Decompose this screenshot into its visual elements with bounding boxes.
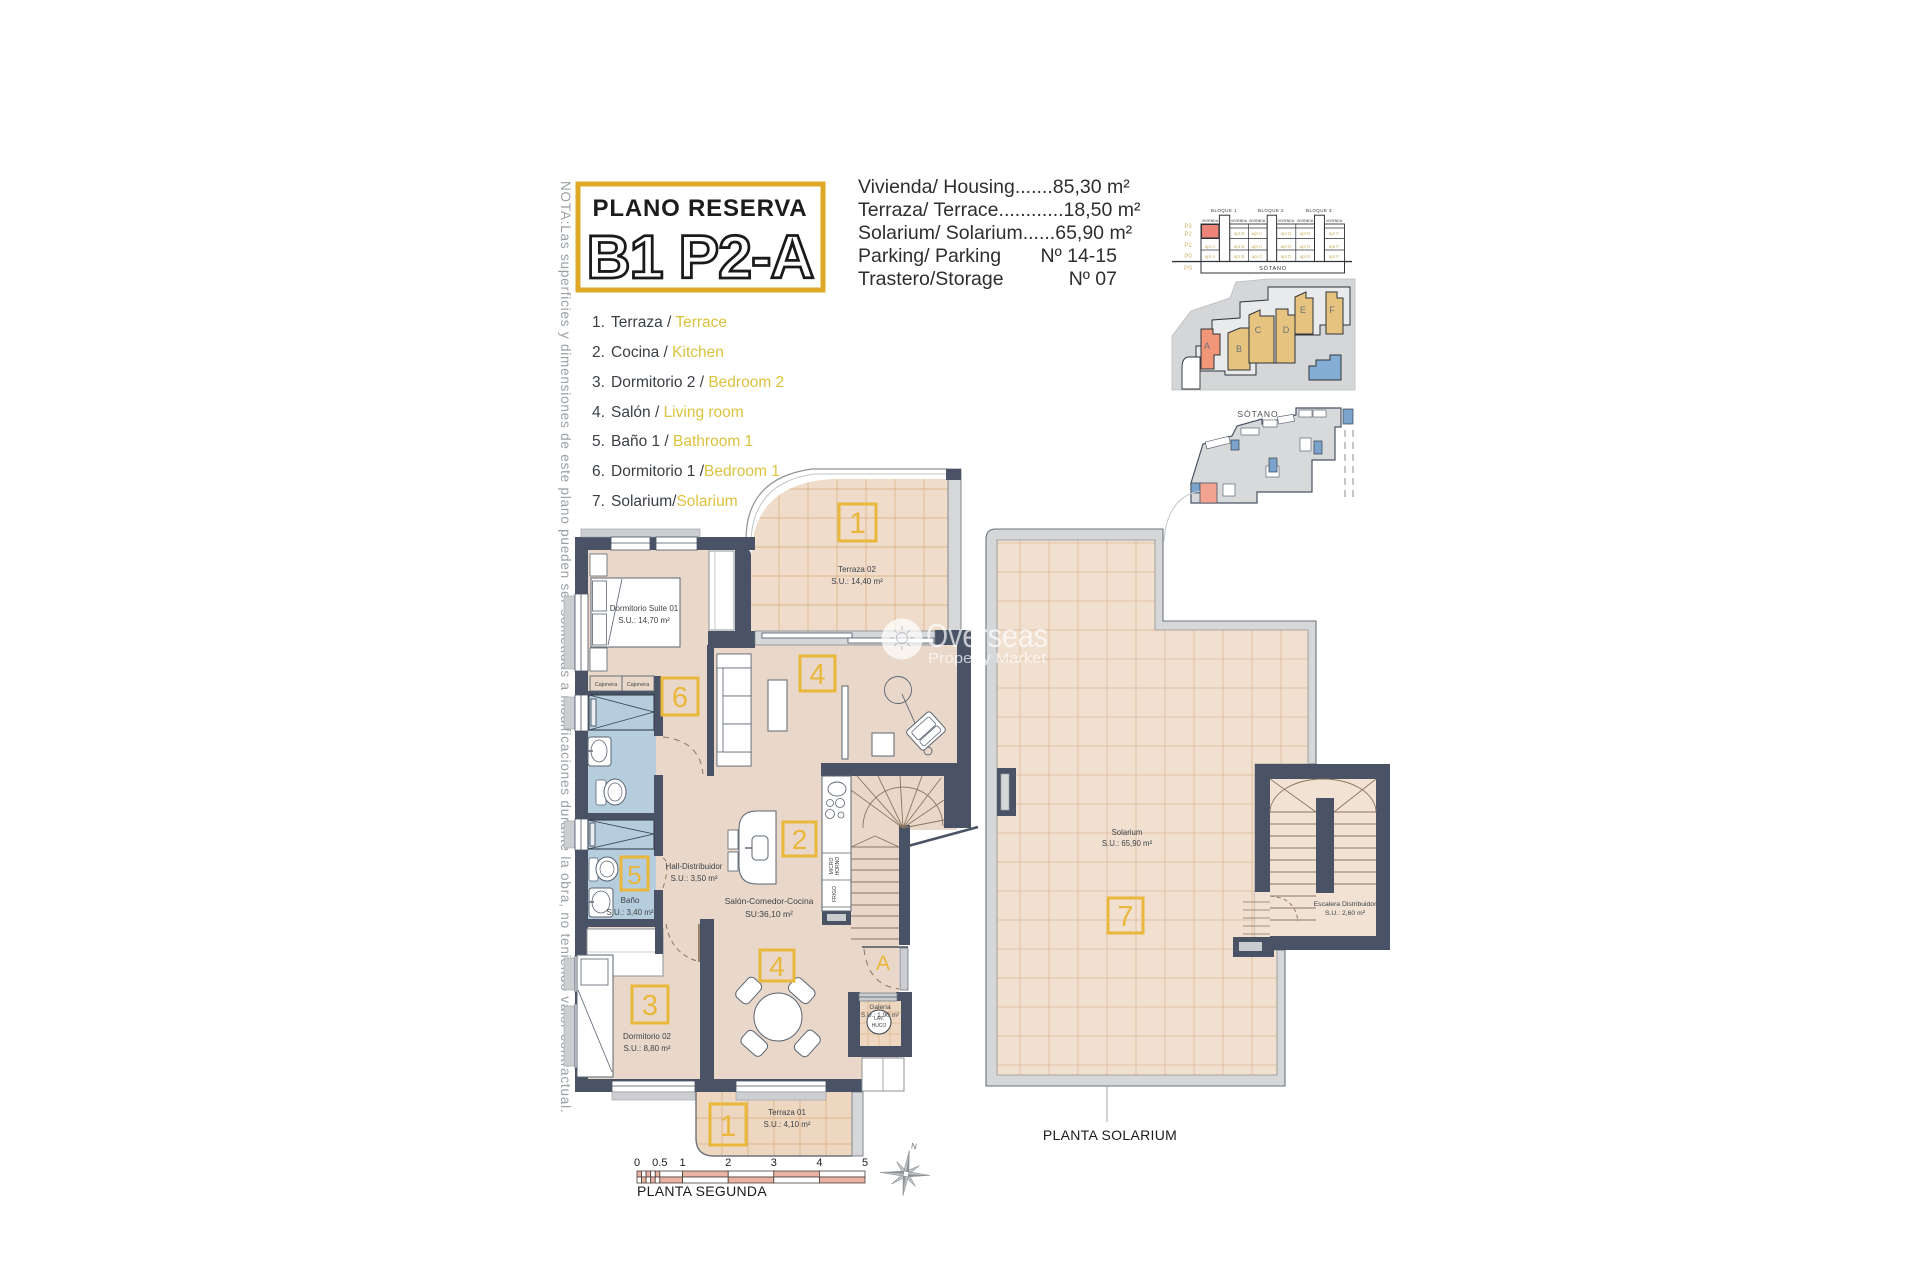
svg-text:apt C: apt C — [1252, 231, 1264, 236]
svg-text:5.: 5. — [592, 433, 605, 450]
svg-text:1: 1 — [680, 1157, 686, 1169]
svg-text:Terraza 02: Terraza 02 — [838, 565, 876, 574]
svg-text:S.U.: 65,90 m²: S.U.: 65,90 m² — [1102, 839, 1153, 848]
svg-text:A: A — [1204, 341, 1210, 351]
svg-text:4: 4 — [809, 659, 825, 691]
svg-text:apt A: apt A — [1205, 254, 1216, 259]
svg-text:S.U.: 14,40 m²: S.U.: 14,40 m² — [831, 577, 883, 586]
svg-text:Terraza / Terrace: Terraza / Terrace — [611, 314, 727, 331]
svg-text:apt D: apt D — [1281, 254, 1293, 259]
svg-text:B: B — [1236, 344, 1242, 354]
svg-text:2: 2 — [792, 824, 808, 855]
svg-text:apt F: apt F — [1329, 254, 1340, 259]
svg-text:S.U.: 2,60 m²: S.U.: 2,60 m² — [1325, 910, 1366, 917]
svg-text:Vivienda/ Housing.......85,30: Vivienda/ Housing.......85,30 m² — [858, 176, 1130, 198]
svg-text:Terraza 01: Terraza 01 — [768, 1108, 806, 1117]
svg-text:Solarium/Solarium: Solarium/Solarium — [611, 493, 738, 510]
svg-text:apt C: apt C — [1252, 244, 1264, 249]
svg-text:Trastero/Storage: Trastero/Storage — [858, 268, 1004, 290]
svg-text:S.U.: 1,90 m²: S.U.: 1,90 m² — [861, 1012, 900, 1019]
svg-text:apt E: apt E — [1300, 231, 1311, 236]
svg-text:Dormitorio 02: Dormitorio 02 — [623, 1032, 672, 1041]
svg-text:SU:36,10 m²: SU:36,10 m² — [745, 909, 793, 919]
svg-text:F: F — [1329, 305, 1335, 315]
svg-text:P2: P2 — [1184, 232, 1192, 238]
svg-text:HUCO: HUCO — [872, 1023, 887, 1029]
svg-text:Cajonera: Cajonera — [595, 682, 618, 688]
svg-text:2: 2 — [725, 1157, 731, 1169]
svg-text:apt B: apt B — [1234, 244, 1245, 249]
svg-text:BLOQUE 3: BLOQUE 3 — [1306, 208, 1332, 213]
svg-text:SÓTANO: SÓTANO — [1259, 265, 1287, 272]
svg-text:Cocina / Kitchen: Cocina / Kitchen — [611, 344, 724, 361]
svg-text:Property Market: Property Market — [928, 650, 1047, 667]
svg-text:Nº 14-15: Nº 14-15 — [1041, 245, 1118, 267]
svg-text:7.: 7. — [592, 493, 605, 510]
svg-text:7: 7 — [1117, 901, 1133, 933]
svg-text:Dormitorio Suite 01: Dormitorio Suite 01 — [610, 604, 679, 613]
svg-text:Salón-Comedor-Cocina: Salón-Comedor-Cocina — [725, 896, 814, 906]
svg-text:P3: P3 — [1184, 224, 1192, 230]
svg-text:VIVIENDA: VIVIENDA — [1278, 219, 1295, 223]
svg-text:4: 4 — [769, 951, 785, 982]
svg-text:BLOQUE 1: BLOQUE 1 — [1211, 208, 1237, 213]
svg-text:Dormitorio 1 /Bedroom 1: Dormitorio 1 /Bedroom 1 — [611, 463, 780, 480]
svg-text:PS: PS — [1184, 266, 1192, 272]
svg-text:PLANO RESERVA: PLANO RESERVA — [593, 195, 808, 222]
svg-text:Dormitorio 2 / Bedroom 2: Dormitorio 2 / Bedroom 2 — [611, 374, 784, 391]
svg-text:S.U.: 8,80 m²: S.U.: 8,80 m² — [623, 1044, 670, 1053]
svg-text:5: 5 — [627, 860, 641, 890]
svg-text:PLANTA SEGUNDA: PLANTA SEGUNDA — [637, 1183, 767, 1199]
svg-text:HORNO: HORNO — [835, 857, 841, 876]
svg-text:apt B: apt B — [1234, 231, 1245, 236]
svg-text:VIVIENDA: VIVIENDA — [1231, 219, 1248, 223]
svg-text:1: 1 — [849, 507, 866, 540]
svg-text:VIVIENDA: VIVIENDA — [1202, 219, 1219, 223]
svg-text:SÓTANO: SÓTANO — [1237, 409, 1278, 419]
svg-text:apt F: apt F — [1329, 231, 1340, 236]
svg-text:Hall-Distribuidor: Hall-Distribuidor — [666, 862, 723, 871]
svg-text:S.U.: 3,40 m²: S.U.: 3,40 m² — [606, 908, 653, 917]
svg-text:0.5: 0.5 — [652, 1157, 667, 1169]
svg-text:P1: P1 — [1184, 243, 1192, 249]
svg-text:Escalera Distribuidor: Escalera Distribuidor — [1314, 901, 1377, 908]
svg-text:apt B: apt B — [1234, 254, 1245, 259]
svg-text:S.U.: 4,10 m²: S.U.: 4,10 m² — [763, 1120, 810, 1129]
svg-text:VIVIENDA: VIVIENDA — [1249, 219, 1266, 223]
svg-text:C: C — [1255, 325, 1262, 335]
svg-text:MICRO: MICRO — [829, 858, 835, 875]
svg-text:Salón / Living room: Salón / Living room — [611, 404, 744, 421]
svg-text:FRIGO: FRIGO — [832, 886, 838, 902]
svg-text:apt E: apt E — [1300, 244, 1311, 249]
svg-text:Baño: Baño — [621, 896, 640, 905]
svg-text:apt C: apt C — [1252, 254, 1264, 259]
svg-text:3: 3 — [771, 1157, 777, 1169]
svg-text:PLANTA SOLARIUM: PLANTA SOLARIUM — [1043, 1127, 1177, 1143]
svg-text:BLOQUE 2: BLOQUE 2 — [1258, 208, 1284, 213]
svg-text:apt A: apt A — [1205, 244, 1216, 249]
svg-text:apt F: apt F — [1329, 244, 1340, 249]
svg-text:4: 4 — [816, 1157, 822, 1169]
svg-text:apt D: apt D — [1281, 231, 1293, 236]
svg-text:4.: 4. — [592, 404, 605, 421]
svg-text:S.U.: 14,70 m²: S.U.: 14,70 m² — [618, 616, 670, 625]
svg-text:Solarium/ Solarium......65,90: Solarium/ Solarium......65,90 m² — [858, 222, 1133, 244]
svg-text:3: 3 — [642, 990, 658, 1022]
svg-text:VIVIENDA: VIVIENDA — [1326, 219, 1343, 223]
svg-text:Nº 07: Nº 07 — [1069, 268, 1117, 290]
svg-text:apt D: apt D — [1281, 244, 1293, 249]
svg-text:apt E: apt E — [1300, 254, 1311, 259]
svg-text:6.: 6. — [592, 463, 605, 480]
svg-text:Solarium: Solarium — [1112, 828, 1143, 837]
svg-text:E: E — [1300, 305, 1306, 315]
svg-text:0: 0 — [634, 1157, 640, 1169]
svg-text:Galería: Galería — [869, 1004, 891, 1011]
svg-text:P0: P0 — [1184, 254, 1192, 260]
svg-text:2.: 2. — [592, 344, 605, 361]
svg-text:6: 6 — [672, 682, 688, 714]
svg-text:1.: 1. — [592, 314, 605, 331]
svg-text:Overseas: Overseas — [926, 617, 1048, 654]
svg-text:VIVIENDA: VIVIENDA — [1297, 219, 1314, 223]
svg-text:3.: 3. — [592, 374, 605, 391]
svg-text:Cajonera: Cajonera — [627, 682, 650, 688]
svg-text:Baño 1 / Bathroom 1: Baño 1 / Bathroom 1 — [611, 433, 753, 450]
svg-text:B1 P2-A: B1 P2-A — [587, 223, 814, 291]
svg-text:1: 1 — [720, 1110, 737, 1143]
svg-text:S.U.: 3,50 m²: S.U.: 3,50 m² — [670, 874, 717, 883]
svg-text:D: D — [1283, 325, 1290, 335]
svg-text:Terraza/ Terrace............18: Terraza/ Terrace............18,50 m² — [858, 199, 1141, 221]
svg-text:A: A — [876, 952, 890, 975]
svg-text:Parking/ Parking: Parking/ Parking — [858, 245, 1001, 267]
svg-text:5: 5 — [862, 1157, 868, 1169]
